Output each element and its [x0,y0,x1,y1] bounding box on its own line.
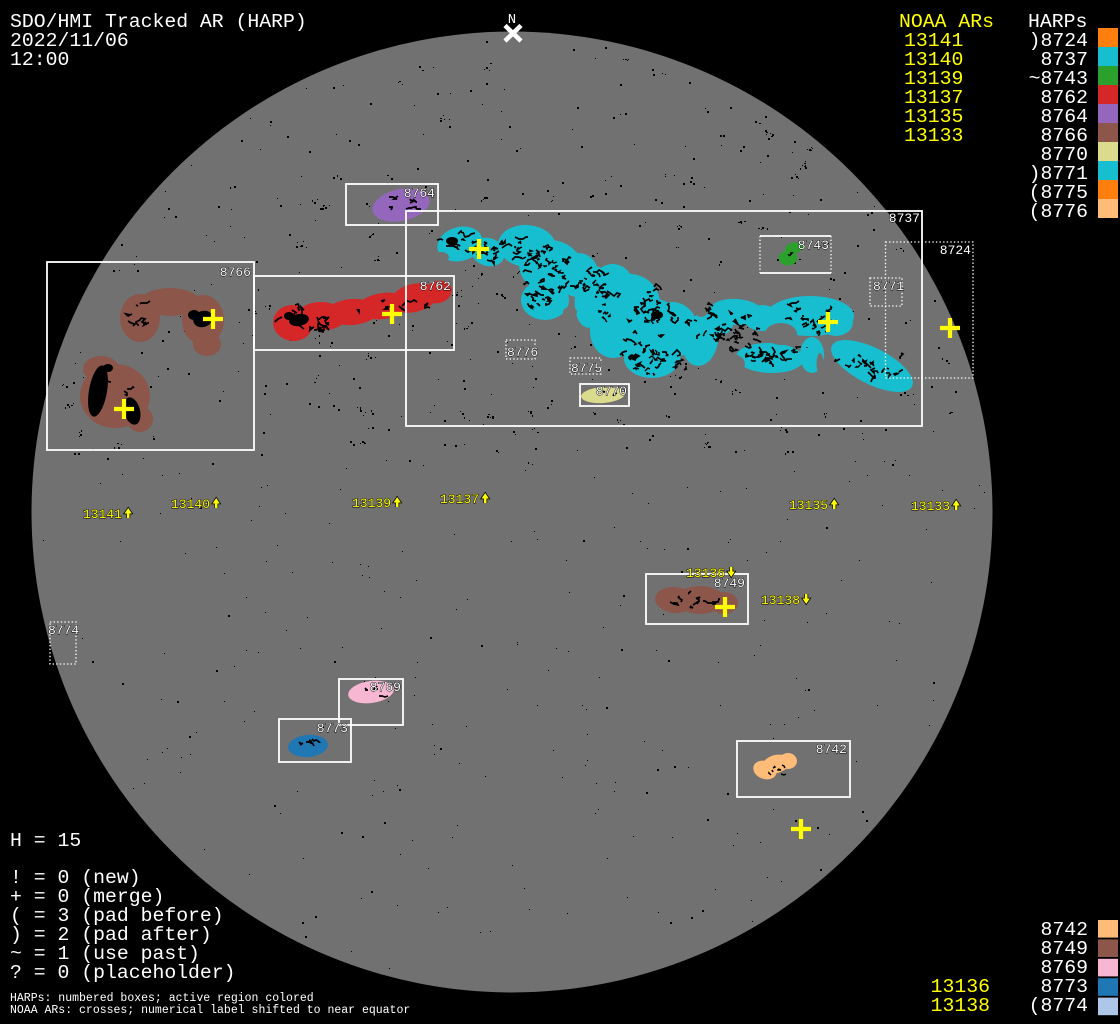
svg-text:8775: 8775 [571,361,602,376]
svg-text:13141: 13141 [83,507,122,522]
svg-text:N: N [508,12,516,28]
svg-text:13133: 13133 [911,499,950,514]
svg-text:13138: 13138 [931,995,990,1017]
svg-text:8771: 8771 [873,279,904,294]
svg-text:8724: 8724 [940,243,971,258]
svg-text:12:00: 12:00 [10,49,69,71]
svg-text:H = 15: H = 15 [10,830,81,852]
svg-text:13135: 13135 [789,498,828,513]
svg-text:? = 0 (placeholder): ? = 0 (placeholder) [10,962,236,984]
svg-text:8770: 8770 [596,384,627,399]
svg-text:13139: 13139 [352,496,391,511]
svg-text:8773: 8773 [317,721,348,736]
svg-text:13136: 13136 [686,566,725,581]
svg-text:8764: 8764 [404,186,435,201]
svg-text:(8776: (8776 [1029,201,1088,223]
svg-text:8737: 8737 [889,211,920,226]
svg-text:8762: 8762 [420,279,451,294]
svg-text:8774: 8774 [48,623,79,638]
svg-text:13140: 13140 [171,497,210,512]
svg-text:NOAA ARs: crosses; numerical l: NOAA ARs: crosses; numerical label shift… [10,1004,410,1017]
svg-text:8742: 8742 [816,742,847,757]
svg-text:8776: 8776 [507,345,538,360]
svg-text:(8774: (8774 [1029,995,1088,1017]
svg-text:13138: 13138 [761,593,800,608]
svg-text:8766: 8766 [220,265,251,280]
svg-text:8743: 8743 [798,238,829,253]
svg-text:8769: 8769 [370,680,401,695]
svg-text:13133: 13133 [904,125,963,147]
svg-text:13137: 13137 [440,492,479,507]
